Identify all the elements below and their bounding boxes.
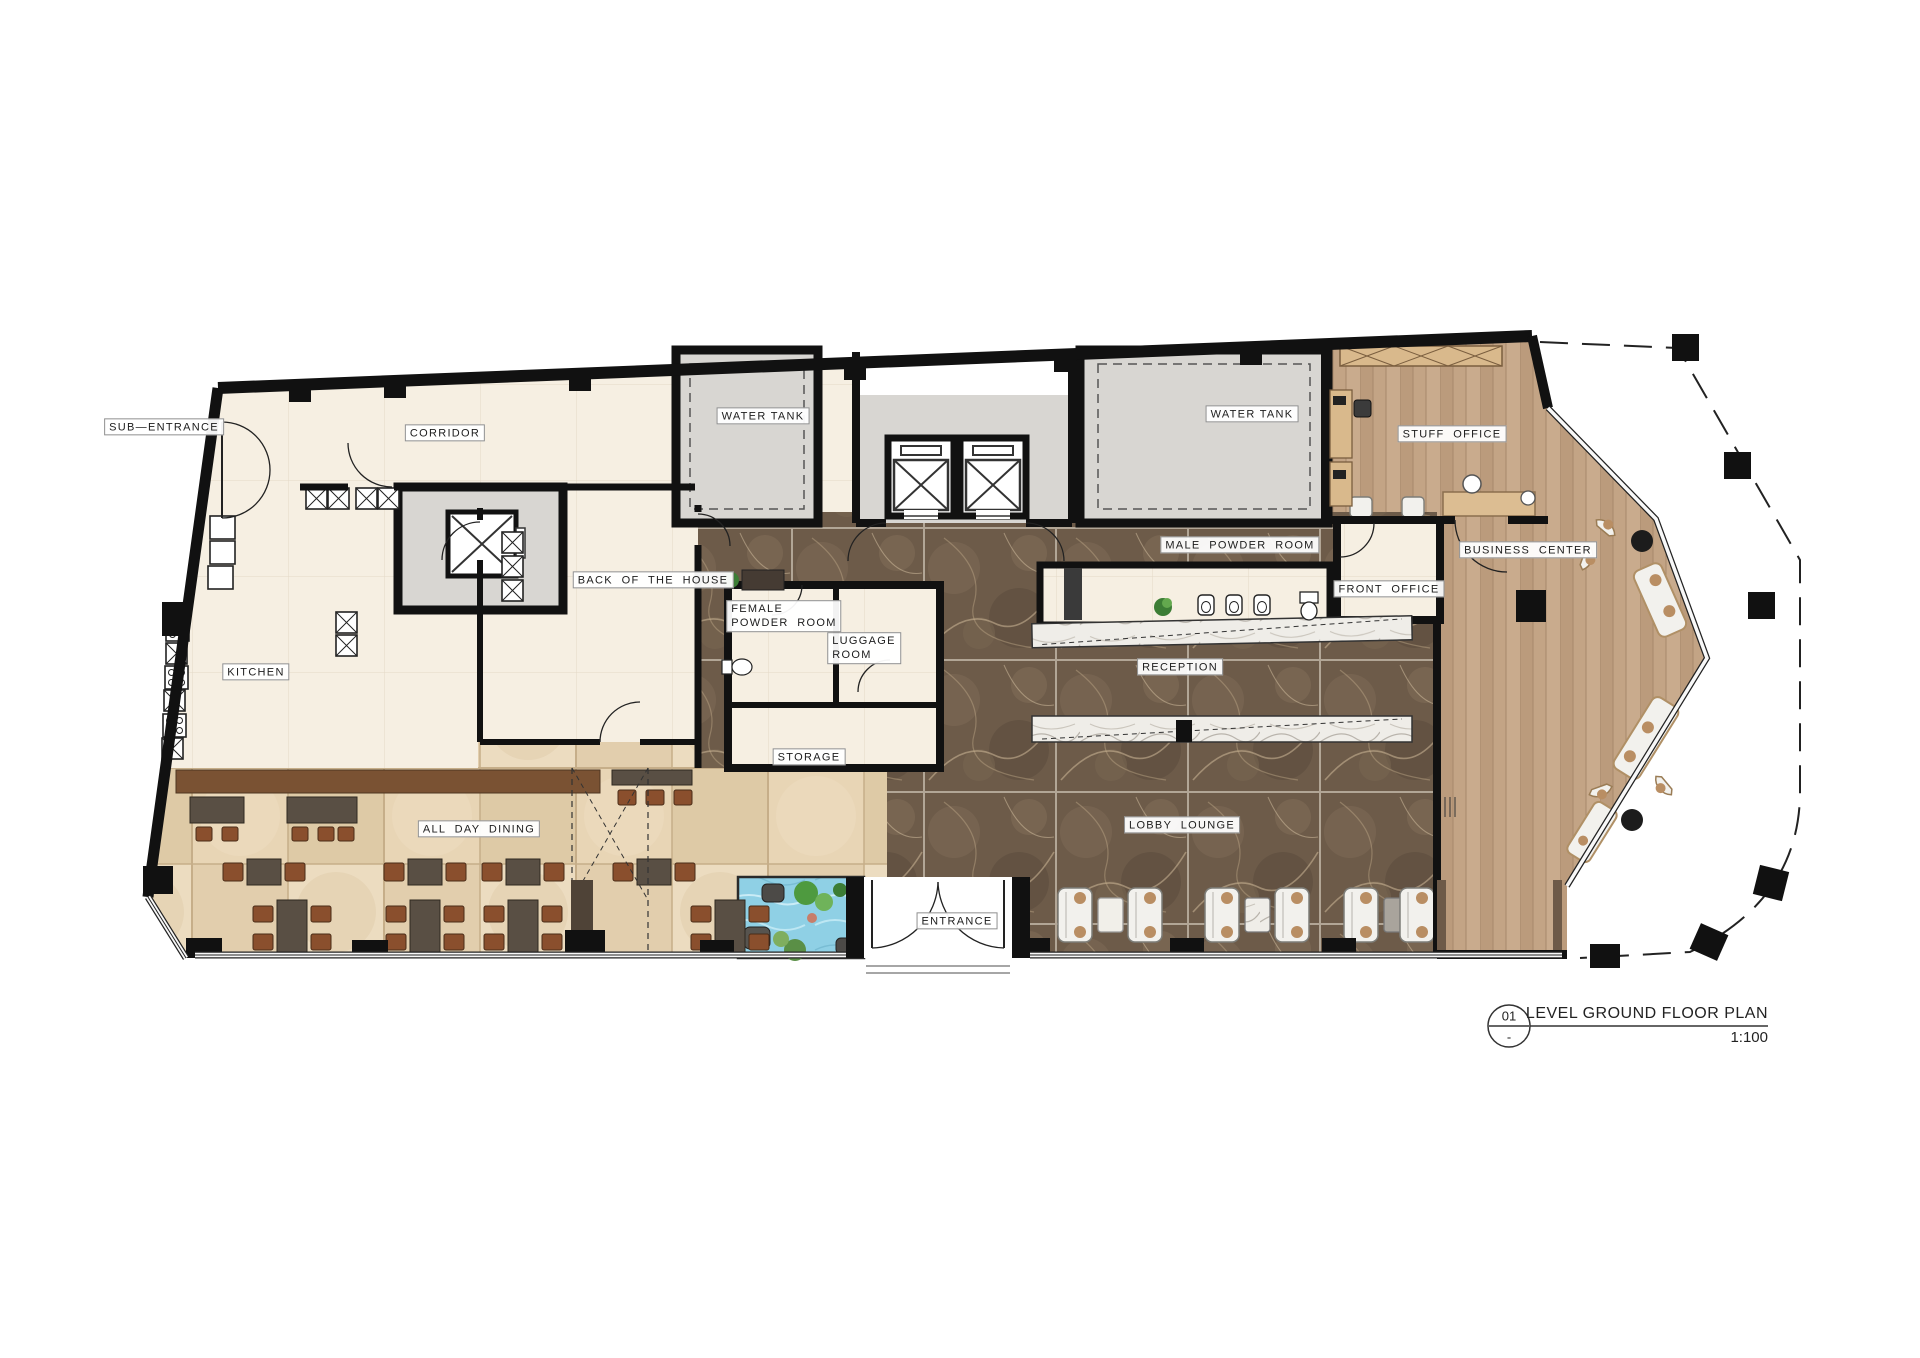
room-label-water-tank-left: WATER TANK (717, 407, 810, 424)
room-label-male-powder-room: MALE POWDER ROOM (1160, 536, 1319, 553)
room-label-storage: STORAGE (773, 748, 846, 765)
room-label-business-center: BUSINESS CENTER (1459, 541, 1597, 558)
sheet-suffix: - (1507, 1030, 1511, 1045)
room-label-kitchen: KITCHEN (222, 663, 289, 680)
room-label-lobby-lounge: LOBBY LOUNGE (1124, 816, 1240, 833)
room-label-entrance: ENTRANCE (917, 912, 998, 929)
room-label-front-office: FRONT OFFICE (1333, 580, 1444, 597)
male-powder-room-interior (1040, 565, 1330, 625)
room-label-female-powder-room: FEMALE POWDER ROOM (726, 600, 841, 632)
room-label-reception: RECEPTION (1137, 658, 1223, 675)
room-label-luggage-room: LUGGAGE ROOM (827, 632, 901, 664)
water-tank-left-room (676, 350, 818, 523)
room-label-all-day-dining: ALL DAY DINING (418, 820, 540, 837)
room-label-corridor: CORRIDOR (405, 424, 485, 441)
drawing-scale: 1:100 (1568, 1029, 1768, 1046)
room-label-water-tank-right: WATER TANK (1206, 405, 1299, 422)
room-label-back-of-the-house: BACK OF THE HOUSE (573, 571, 734, 588)
floor-plan-sheet: SUB—ENTRANCE CORRIDOR WATER TANK WATER T… (0, 0, 1920, 1358)
drawing-title: LEVEL GROUND FLOOR PLAN (1348, 1005, 1768, 1023)
water-tank-right-room (1080, 350, 1328, 523)
front-office-room (1337, 520, 1440, 620)
room-label-stuff-office: STUFF OFFICE (1398, 425, 1507, 442)
room-label-sub-entrance: SUB—ENTRANCE (104, 418, 224, 435)
passenger-elevators (888, 438, 1026, 519)
